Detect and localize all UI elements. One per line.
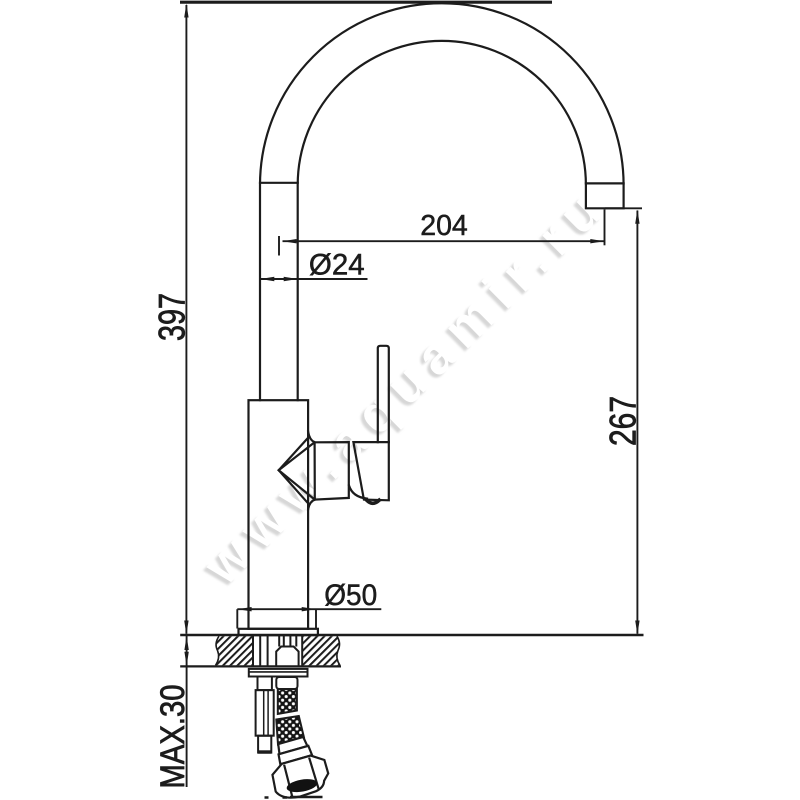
svg-text:204: 204 bbox=[420, 210, 468, 242]
svg-text:397: 397 bbox=[152, 293, 193, 341]
svg-text:Ø50: Ø50 bbox=[324, 579, 377, 612]
svg-text:267: 267 bbox=[603, 396, 644, 446]
svg-text:Ø24: Ø24 bbox=[309, 249, 365, 282]
svg-text:MAX.30: MAX.30 bbox=[154, 685, 192, 789]
